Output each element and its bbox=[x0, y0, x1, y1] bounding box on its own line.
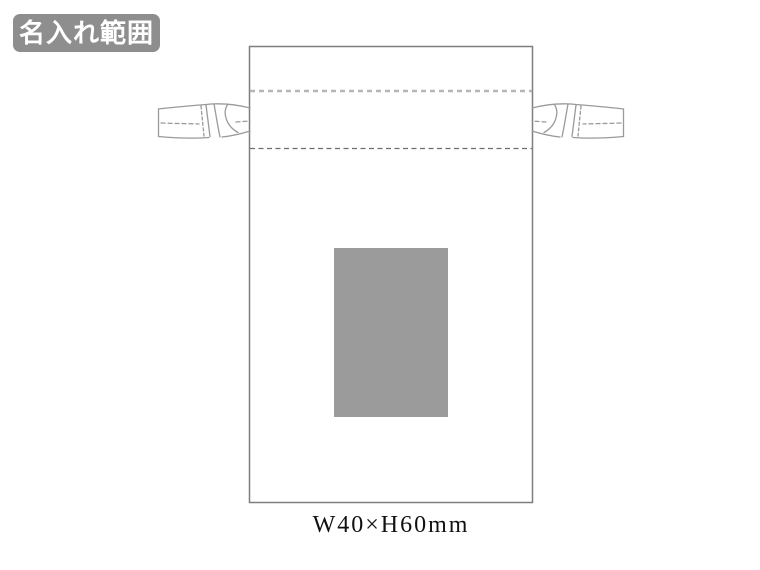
drawstring-cord-left bbox=[159, 104, 251, 138]
print-area-rect bbox=[334, 248, 448, 417]
drawstring-cord-right bbox=[532, 104, 624, 138]
name-print-range-figure: 名入れ範囲 bbox=[0, 0, 760, 570]
print-area-size-caption: W40×H60mm bbox=[249, 512, 533, 539]
drawstring-bag-diagram bbox=[0, 0, 760, 570]
